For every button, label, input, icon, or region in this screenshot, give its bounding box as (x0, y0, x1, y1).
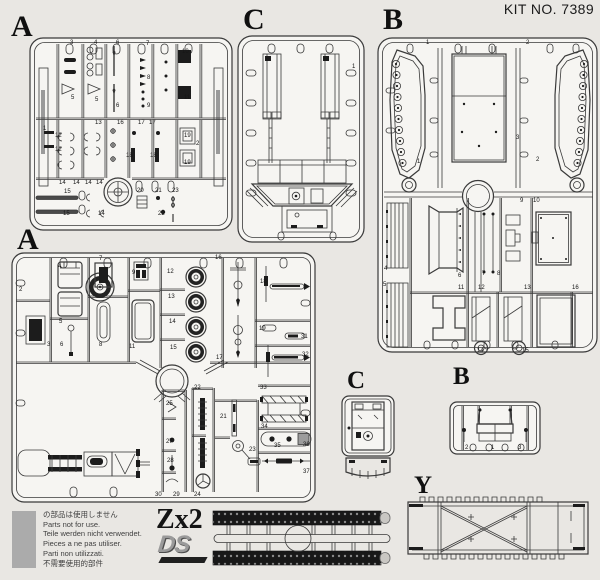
svg-text:12: 12 (55, 147, 62, 153)
not-used-line-ja: の部品は使用しません (43, 510, 161, 520)
sprue-diagrams: 3467108556911113161717121218181919214141… (0, 0, 600, 580)
svg-text:31: 31 (301, 334, 308, 340)
svg-text:17: 17 (149, 120, 156, 126)
svg-text:28: 28 (167, 458, 174, 464)
sprue-label-c2: C (347, 368, 365, 393)
svg-text:12: 12 (478, 285, 485, 291)
svg-text:14: 14 (96, 180, 103, 186)
svg-text:18: 18 (150, 153, 157, 159)
sprue-c1-drawing (238, 36, 364, 242)
sprue-y-drawing (408, 497, 588, 559)
sprue-label-y: Y (414, 473, 432, 498)
svg-text:29: 29 (173, 492, 180, 498)
svg-text:35: 35 (274, 443, 281, 449)
svg-text:17: 17 (216, 355, 223, 361)
sprue-b2-drawing (450, 402, 540, 454)
svg-text:19: 19 (184, 160, 191, 166)
svg-text:15: 15 (63, 211, 70, 217)
svg-text:34: 34 (261, 424, 268, 430)
svg-text:24: 24 (194, 492, 201, 498)
svg-text:20: 20 (137, 188, 144, 194)
svg-text:15: 15 (522, 348, 529, 354)
sprue-label-b1: B (383, 5, 403, 35)
sprue-label-a2: A (17, 225, 39, 255)
svg-text:23: 23 (172, 188, 179, 194)
svg-text:11: 11 (129, 344, 136, 350)
ds-logo: DS (158, 534, 208, 563)
svg-text:27: 27 (166, 439, 173, 445)
not-used-line-fr: Pieces a ne pas utiliser. (43, 539, 161, 549)
svg-text:14: 14 (59, 180, 66, 186)
svg-text:13: 13 (524, 285, 531, 291)
svg-text:33: 33 (260, 385, 267, 391)
svg-text:19: 19 (184, 133, 191, 139)
svg-text:17: 17 (138, 120, 145, 126)
svg-text:11: 11 (458, 285, 465, 291)
sprue-label-b2: B (453, 364, 470, 389)
svg-text:21: 21 (155, 188, 162, 194)
svg-text:13: 13 (168, 294, 175, 300)
svg-text:23: 23 (249, 447, 256, 453)
sprue-label-a1: A (11, 12, 33, 42)
svg-text:30: 30 (155, 492, 162, 498)
sprue-b1-drawing (378, 38, 597, 355)
svg-text:37: 37 (303, 469, 310, 475)
svg-text:16: 16 (572, 285, 579, 291)
svg-text:22: 22 (158, 211, 165, 217)
svg-text:14: 14 (169, 319, 176, 325)
svg-text:18: 18 (260, 279, 267, 285)
sprue-label-c1: C (243, 5, 265, 35)
svg-text:12: 12 (167, 269, 174, 275)
svg-text:25: 25 (166, 401, 173, 407)
svg-text:22: 22 (194, 385, 201, 391)
not-used-notice: の部品は使用しません Parts not for use. Teile werd… (43, 510, 161, 568)
svg-text:16: 16 (117, 120, 124, 126)
ds-logo-bar (158, 557, 207, 563)
instruction-sheet-page: 3467108556911113161717121218181919214141… (0, 0, 600, 580)
not-used-line-en: Parts not for use. (43, 520, 161, 530)
not-used-gray-swatch (12, 511, 36, 568)
svg-text:14: 14 (73, 180, 80, 186)
kit-number: KIT NO. 7389 (504, 1, 594, 17)
svg-text:14: 14 (477, 348, 484, 354)
svg-text:14: 14 (85, 180, 92, 186)
svg-text:21: 21 (220, 414, 227, 420)
svg-text:10: 10 (182, 49, 189, 55)
svg-text:32: 32 (302, 352, 309, 358)
svg-text:15: 15 (64, 189, 71, 195)
svg-text:18: 18 (126, 153, 133, 159)
svg-text:16: 16 (215, 255, 222, 261)
not-used-line-de: Teile werden nicht verwendet. (43, 529, 161, 539)
ds-logo-text: DS (157, 534, 209, 556)
svg-text:13: 13 (95, 120, 102, 126)
not-used-line-zh: 不需要使用的部件 (43, 559, 161, 569)
svg-text:10: 10 (533, 198, 540, 204)
svg-text:15: 15 (170, 345, 177, 351)
svg-text:14: 14 (98, 211, 105, 217)
not-used-line-it: Parti non utilizzati. (43, 549, 161, 559)
svg-text:11: 11 (184, 95, 191, 101)
sprue-a2-drawing (12, 253, 315, 502)
svg-text:12: 12 (55, 133, 62, 139)
svg-text:36: 36 (303, 442, 310, 448)
sprue-c2-drawing (342, 396, 394, 479)
track-links-drawing (213, 511, 390, 565)
svg-text:19: 19 (259, 326, 266, 332)
